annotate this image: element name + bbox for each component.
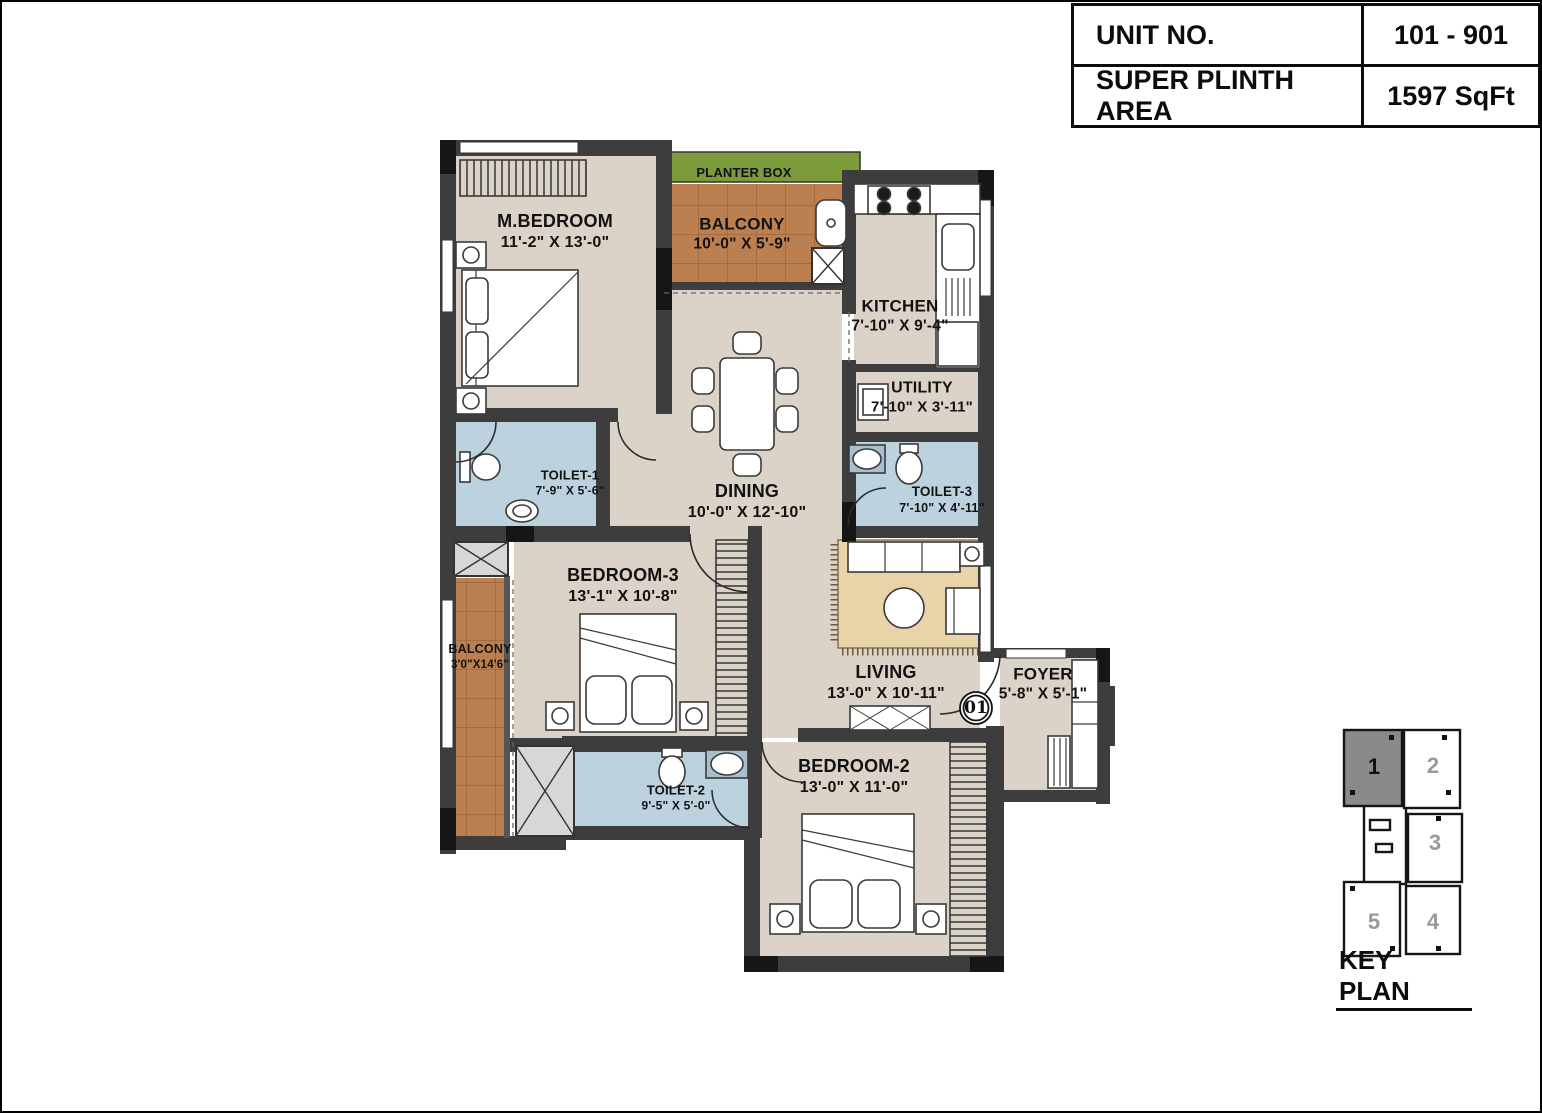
- room-name: FOYER: [999, 664, 1087, 685]
- plinth-area-label: SUPER PLINTH AREA: [1074, 67, 1364, 125]
- unit-no-value: 101 - 901: [1364, 6, 1538, 64]
- floor-plan-page: M.BEDROOM 11'-2" X 13'-0" PLANTER BOX BA…: [0, 0, 1542, 1113]
- key-plan-unit-2: 2: [1427, 753, 1439, 779]
- room-label-utility: UTILITY 7'-10" X 3'-11": [871, 379, 973, 418]
- table-row: UNIT NO. 101 - 901: [1074, 6, 1538, 64]
- room-name: BEDROOM-3: [567, 564, 679, 587]
- room-dims: 13'-1" X 10'-8": [567, 586, 679, 606]
- unit-no-label: UNIT NO.: [1074, 6, 1364, 64]
- room-label-balcony-top: BALCONY 10'-0" X 5'-9": [693, 214, 790, 255]
- room-dims: 11'-2" X 13'-0": [497, 232, 613, 252]
- room-label-dining: DINING 10'-0" X 12'-10": [688, 480, 807, 523]
- room-name: BALCONY: [448, 642, 511, 658]
- key-plan-unit-3: 3: [1429, 830, 1441, 856]
- master-wardrobe: [460, 160, 586, 196]
- plinth-area-value: 1597 SqFt: [1364, 67, 1538, 125]
- room-dims: 10'-0" X 5'-9": [693, 235, 790, 254]
- room-dims: 5'-8" X 5'-1": [999, 685, 1087, 704]
- bedroom3-bed: [580, 614, 676, 732]
- room-name: TOILET-3: [899, 484, 984, 501]
- key-plan-title: KEY PLAN: [1336, 945, 1472, 1011]
- room-label-kitchen: KITCHEN 7'-10" X 9'-4": [851, 296, 948, 337]
- room-dims: 10'-0" X 12'-10": [688, 502, 807, 522]
- room-label-foyer: FOYER 5'-8" X 5'-1": [999, 664, 1087, 705]
- kitchen-sink: [942, 224, 974, 270]
- room-name: LIVING: [827, 661, 945, 684]
- room-label-living: LIVING 13'-0" X 10'-11": [827, 661, 945, 704]
- room-name: BEDROOM-2: [798, 755, 910, 778]
- master-bed: [462, 270, 578, 386]
- key-plan-unit-5: 5: [1368, 909, 1380, 935]
- room-name: M.BEDROOM: [497, 210, 613, 233]
- living-tv-unit: [850, 706, 930, 730]
- room-name: DINING: [688, 480, 807, 503]
- table-row: SUPER PLINTH AREA 1597 SqFt: [1074, 64, 1538, 125]
- room-label-toilet-3: TOILET-3 7'-10" X 4'-11": [899, 484, 984, 517]
- bedroom2-wardrobe: [950, 742, 988, 956]
- room-dims: 13'-0" X 11'-0": [798, 777, 910, 797]
- room-name: TOILET-1: [535, 467, 604, 483]
- room-dims: 7'-10" X 4'-11": [899, 501, 984, 517]
- balcony-basin: [816, 200, 846, 246]
- room-name: TOILET-2: [641, 782, 710, 798]
- room-name: UTILITY: [871, 379, 973, 399]
- room-label-balcony-left: BALCONY 3'0"X14'6": [448, 642, 511, 672]
- room-dims: 7'-10" X 9'-4": [851, 317, 948, 336]
- room-name: PLANTER BOX: [696, 165, 791, 181]
- room-dims: 9'-5" X 5'-0": [641, 799, 710, 814]
- key-plan-drawing: [1344, 730, 1462, 956]
- room-dims: 3'0"X14'6": [448, 658, 511, 672]
- key-plan-unit-1: 1: [1368, 754, 1380, 780]
- room-label-bedroom-3: BEDROOM-3 13'-1" X 10'-8": [567, 564, 679, 607]
- room-label-m-bedroom: M.BEDROOM 11'-2" X 13'-0": [497, 210, 613, 253]
- room-dims: 7'-9" X 5'-6": [535, 484, 604, 499]
- room-dims: 13'-0" X 10'-11": [827, 683, 945, 703]
- room-name: KITCHEN: [851, 296, 948, 317]
- room-label-toilet-1: TOILET-1 7'-9" X 5'-6": [535, 467, 604, 498]
- bedroom3-wardrobe: [716, 540, 748, 738]
- room-label-toilet-2: TOILET-2 9'-5" X 5'-0": [641, 782, 710, 813]
- bedroom2-bed: [802, 814, 914, 932]
- room-name: BALCONY: [693, 214, 790, 235]
- key-plan-unit-4: 4: [1427, 909, 1439, 935]
- unit-entrance-number: 01: [964, 698, 988, 718]
- balcony-railing: [504, 576, 510, 838]
- room-dims: 7'-10" X 3'-11": [871, 399, 973, 418]
- room-label-planter-box: PLANTER BOX: [696, 165, 791, 181]
- unit-info-table: UNIT NO. 101 - 901 SUPER PLINTH AREA 159…: [1071, 3, 1541, 128]
- room-label-bedroom-2: BEDROOM-2 13'-0" X 11'-0": [798, 755, 910, 798]
